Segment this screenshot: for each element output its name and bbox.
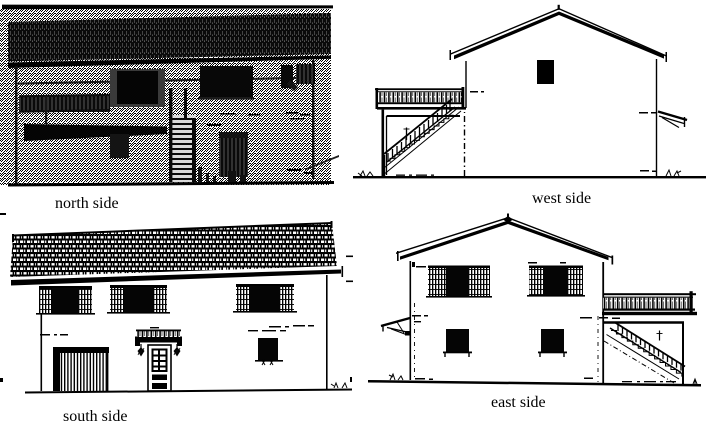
svg-text:north side: north side bbox=[55, 195, 119, 212]
svg-text:west side: west side bbox=[532, 190, 591, 207]
svg-text:east side: east side bbox=[491, 394, 546, 411]
svg-text:south side: south side bbox=[63, 408, 127, 425]
